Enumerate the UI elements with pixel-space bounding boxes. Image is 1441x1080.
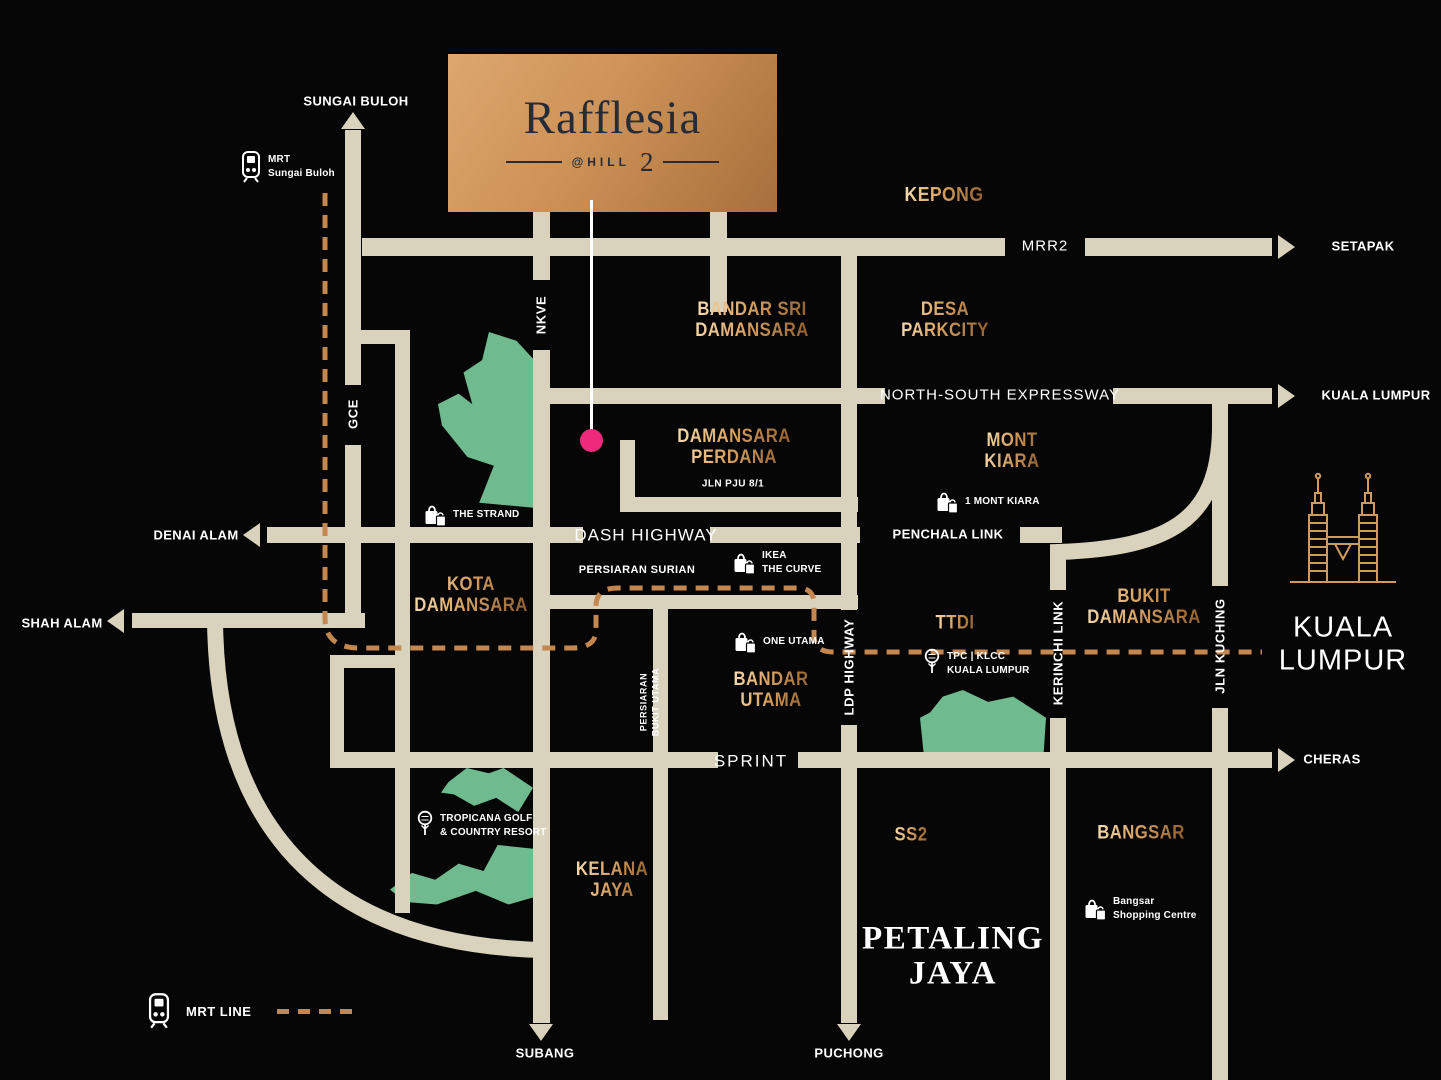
road-jln-kuching-north [1212,396,1228,586]
road-jln-pju-vertical [620,440,635,500]
project-location-marker [580,429,603,452]
poi-the-strand: THE STRAND [424,502,519,528]
road-label-jln-kuching: JLN KUCHING [1213,598,1228,693]
legend-dash-sample [277,1009,357,1014]
road-nkve-north [533,212,550,280]
region-label-ttdi: TTDI [936,614,975,635]
poi-1-mont-kiara: 1 MONT KIARA [936,489,1040,515]
road-mrr2-east [1085,238,1272,256]
subtitle-rule-left [506,161,562,163]
shopping-bag-icon [424,502,447,528]
region-label-kepong: KEPONG [905,184,984,206]
poi-tropicana-golf: TROPICANA GOLF & COUNTRY RESORT [416,810,547,842]
poi-label: IKEA THE CURVE [762,549,821,577]
road-label-penchala-link: PENCHALA LINK [893,528,1004,543]
poi-tpc-klcc: TPC | KLCC KUALA LUMPUR [923,648,1030,680]
road-label-persiaran-surian: PERSIARAN SURIAN [579,564,695,576]
road-north-south-expressway-west [533,388,885,404]
legend-label: MRT LINE [186,1004,251,1019]
road-jln-pju-horizontal [620,497,858,512]
road-persiaran-bukit-utama [653,600,668,1020]
region-label-bandar-utama: BANDAR UTAMA [733,670,808,712]
poi-label: ONE UTAMA [763,635,825,649]
arrow-kuala-lumpur [1278,384,1295,408]
subtitle-text: @HILL [572,155,630,169]
poi-label: THE STRAND [453,508,519,522]
park-area [438,332,536,508]
road-gce-south [345,445,361,628]
edge-label-denai-alam: DENAI ALAM [153,529,238,544]
klcc-towers-icon [1282,455,1404,587]
poi-one-utama: ONE UTAMA [734,629,825,655]
city-label-kuala-lumpur: KUALA LUMPUR [1279,612,1407,679]
road-label-nkve: NKVE [534,296,549,335]
project-logo-title: Rafflesia [524,91,702,145]
arrow-sungai-buloh [341,112,365,129]
road-north-south-expressway-east [1113,388,1272,404]
project-logo-subtitle: @HILL 2 [506,149,720,176]
region-label-mont-kiara: MONT KIARA [984,431,1039,473]
road-label-gce: GCE [346,399,361,429]
edge-label-shah-alam: SHAH ALAM [21,617,102,632]
shopping-bag-icon [1084,896,1107,922]
location-leader-line [590,200,593,432]
location-map: SUNGAI BULOH SETAPAK KUALA LUMPUR DENAI … [0,0,1441,1080]
subtitle-rule-right [663,161,719,163]
poi-mrt-sungai-buloh: MRT Sungai Buloh [240,150,335,184]
region-label-bukit-damansara: BUKIT DAMANSARA [1087,587,1201,629]
city-label-petaling-jaya: PETALING JAYA [862,921,1044,990]
poi-ikea-the-curve: IKEA THE CURVE [733,549,821,577]
road-label-ldp-highway: LDP HIGHWAY [842,619,857,716]
subtitle-number: 2 [640,149,654,176]
road-kerinchi-curve [1058,402,1220,570]
arrow-shah-alam [107,609,124,633]
poi-label: MRT Sungai Buloh [268,153,335,181]
road-label-kerinchi-link: KERINCHI LINK [1051,601,1066,706]
road-nkve-south [533,350,550,1023]
region-label-kelana-jaya: KELANA JAYA [576,860,648,902]
poi-bangsar-shopping-centre: Bangsar Shopping Centre [1084,895,1197,923]
road-penchala-link [1020,527,1062,543]
train-icon [146,992,172,1030]
golf-icon [416,810,434,842]
edge-label-sungai-buloh: SUNGAI BULOH [303,95,408,110]
poi-label: TROPICANA GOLF & COUNTRY RESORT [440,812,547,840]
road-dash-highway-mid [710,527,860,543]
road-label-sprint: SPRINT [714,751,788,770]
road-ldp-south [841,725,857,1023]
park-area [441,768,533,812]
region-label-ss2: SS2 [895,826,928,847]
edge-label-kuala-lumpur: KUALA LUMPUR [1321,389,1430,404]
shopping-bag-icon [734,629,757,655]
road-persiaran-surian [537,595,858,609]
poi-label: Bangsar Shopping Centre [1113,895,1197,923]
road-shah-alam [132,613,365,628]
road-label-mrr2: MRR2 [1022,239,1069,256]
edge-label-subang: SUBANG [516,1047,575,1062]
region-label-desa-parkcity: DESA PARKCITY [901,300,989,342]
edge-label-cheras: CHERAS [1303,753,1360,768]
poi-label: TPC | KLCC KUALA LUMPUR [947,650,1030,678]
region-label-damansara-perdana: DAMANSARA PERDANA [677,427,791,469]
region-label-kota-damansara: KOTA DAMANSARA [414,575,528,617]
road-stub-below-logo [710,212,727,312]
road-kerinchi-link-south [1050,718,1066,1080]
region-label-bangsar: BANGSAR [1097,824,1185,845]
arrow-cheras [1278,748,1295,772]
project-logo: Rafflesia @HILL 2 [448,54,777,212]
road-label-north-south-expressway: NORTH-SOUTH EXPRESSWAY [880,388,1120,405]
train-icon [240,150,262,184]
road-label-jln-pju: JLN PJU 8/1 [702,478,764,489]
arrow-subang [529,1024,553,1041]
road-label-dash-highway: DASH HIGHWAY [574,525,717,544]
road-label-persiaran-bukit-utama: PERSIARAN BUKIT UTAMA [638,668,661,736]
region-label-bandar-sri-damansara: BANDAR SRI DAMANSARA [695,300,809,342]
arrow-setapak [1278,235,1295,259]
road-kerinchi-link-north [1050,545,1066,590]
shopping-bag-icon [936,489,959,515]
road-ldp-north [841,256,857,610]
park-area [390,845,546,907]
arrow-puchong [837,1024,861,1041]
road-mrr2-west [362,238,1005,256]
golf-icon [923,648,941,680]
shopping-bag-icon [733,550,756,576]
arrow-denai-alam [243,523,260,547]
poi-label: 1 MONT KIARA [965,495,1040,509]
park-area [920,690,1046,756]
road-kota-damansara-loop-left [330,655,344,765]
edge-label-puchong: PUCHONG [814,1047,883,1062]
road-sprint-east [798,752,1272,768]
road-kota-damansara-west [395,338,410,913]
road-gce-north [345,130,361,385]
legend-mrt-line: MRT LINE [146,992,357,1030]
road-jln-kuching-south [1212,708,1228,1080]
edge-label-setapak: SETAPAK [1332,240,1395,255]
